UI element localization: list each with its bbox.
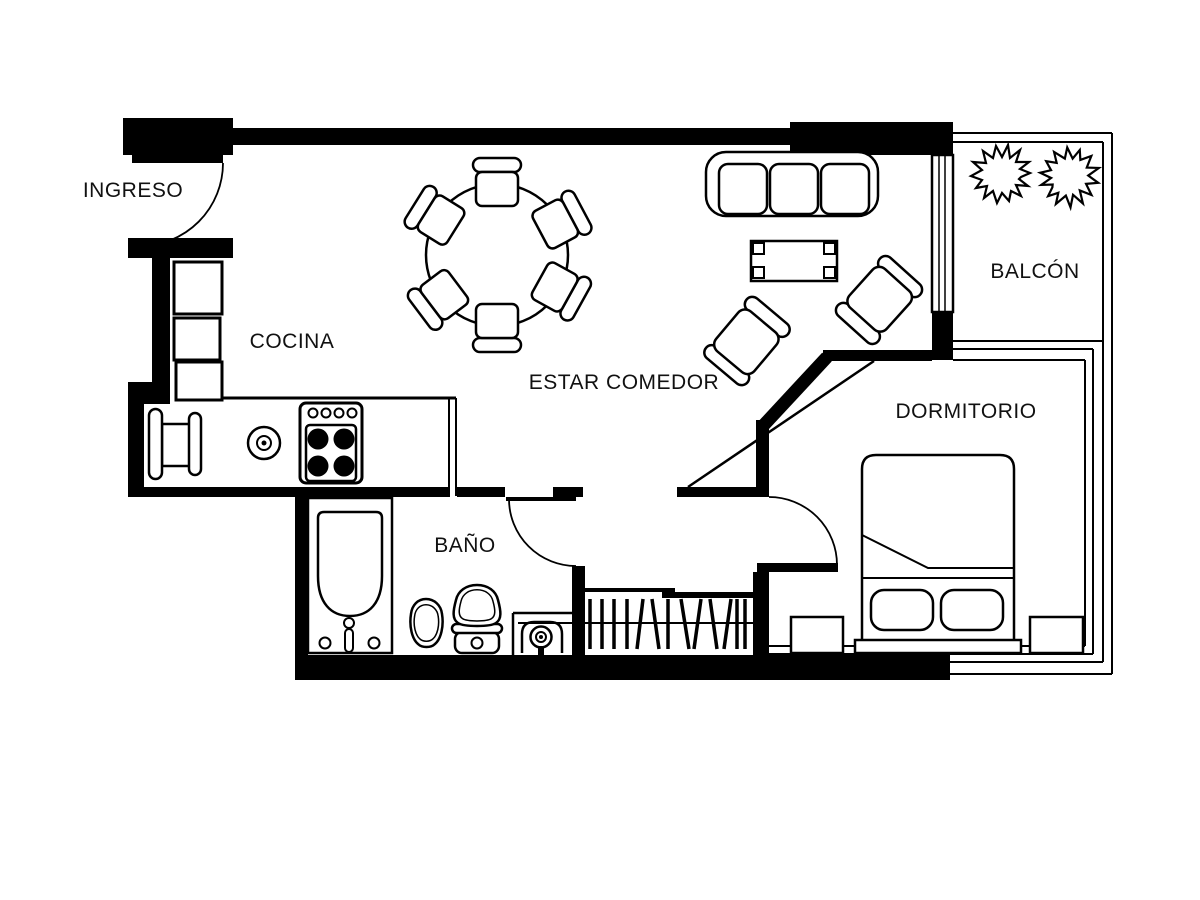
plant-icon xyxy=(1029,135,1111,217)
wall-bath-west xyxy=(295,490,308,680)
floor-plan: INGRESO COCINA ESTAR COMEDOR BALCÓN DORM… xyxy=(0,0,1200,900)
nightstand xyxy=(1030,617,1083,653)
entry-door-swing-arc xyxy=(140,163,223,246)
wall-window-pier xyxy=(932,312,953,360)
wall-top-right-block xyxy=(790,122,953,155)
bedroom-furniture xyxy=(791,455,1083,653)
wall-top-main xyxy=(233,128,793,145)
kitchen-fixtures xyxy=(149,262,362,483)
cabinet xyxy=(174,318,220,360)
sofa-cushion xyxy=(821,164,869,214)
bidet xyxy=(410,599,442,647)
room-label-dormitorio: DORMITORIO xyxy=(895,400,1036,423)
coffee-table xyxy=(751,241,837,281)
room-label-balcon: BALCÓN xyxy=(990,260,1079,283)
wall-left-lower xyxy=(128,404,144,497)
bedroom-door-swing-arc xyxy=(769,497,837,565)
wall-bottom xyxy=(295,655,950,680)
kitchen-cabinets xyxy=(174,262,222,400)
cabinet xyxy=(176,362,222,400)
wall-kitchen-south-1 xyxy=(128,487,450,497)
kitchen-sink-icon xyxy=(248,427,280,459)
bathtub xyxy=(308,498,392,653)
bedroom-door-leaf xyxy=(757,563,838,572)
dining-set xyxy=(402,158,594,352)
wall-diagonal xyxy=(762,357,827,427)
bathroom-fixtures xyxy=(308,498,572,655)
dining-chair xyxy=(473,304,521,352)
plant-icon xyxy=(971,145,1030,203)
window-living-balcony xyxy=(932,155,953,312)
wall-hall-north xyxy=(677,487,769,497)
room-label-cocina: COCINA xyxy=(250,330,335,353)
bath-door-swing-arc xyxy=(509,499,576,566)
toilet xyxy=(452,585,502,653)
room-label-bano: BAÑO xyxy=(434,533,496,557)
kitchen-chair xyxy=(149,409,201,479)
double-bed xyxy=(855,455,1021,653)
pillow xyxy=(941,590,1003,630)
washbasin xyxy=(513,613,572,655)
wall-bath-stub xyxy=(553,487,583,497)
closet-front-1 xyxy=(585,588,675,592)
wall-bedroom-west xyxy=(756,420,769,497)
dining-chair xyxy=(473,158,521,206)
floor-plan-canvas: INGRESO COCINA ESTAR COMEDOR BALCÓN DORM… xyxy=(0,0,1200,900)
wall-kitchen-south-2 xyxy=(457,487,505,497)
room-label-ingreso: INGRESO xyxy=(83,179,183,202)
sofa xyxy=(706,152,878,216)
pillow xyxy=(871,590,933,630)
closet-front-2 xyxy=(662,592,756,598)
sofa-cushion xyxy=(719,164,767,214)
bath-door-leaf xyxy=(506,497,576,501)
wall-entry-lower xyxy=(128,238,233,258)
wall-left-upper xyxy=(152,258,170,384)
nightstand xyxy=(791,617,843,653)
bed-headboard xyxy=(855,640,1021,653)
room-label-estar-comedor: ESTAR COMEDOR xyxy=(529,371,719,394)
cabinet xyxy=(174,262,222,314)
wall-bedroom-north xyxy=(823,350,932,361)
stove-icon xyxy=(300,403,362,483)
entry-door-leaf xyxy=(132,155,223,163)
wall-top-left-block xyxy=(123,118,233,155)
armchair xyxy=(833,253,925,347)
sofa-cushion xyxy=(770,164,818,214)
wall-left-block xyxy=(128,382,170,404)
